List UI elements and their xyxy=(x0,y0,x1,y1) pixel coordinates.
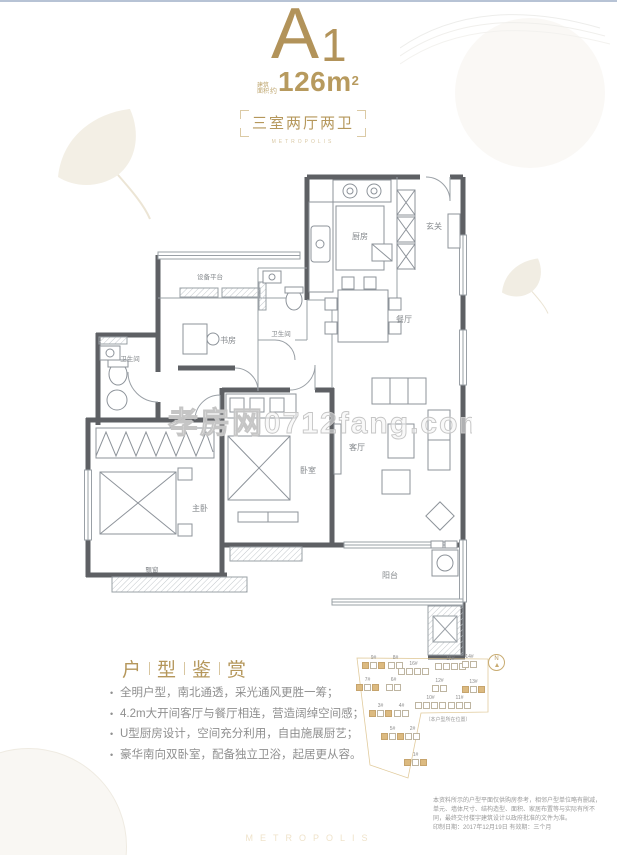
room-living: 客厅 xyxy=(349,442,365,452)
room-master-bedroom: 主卧 xyxy=(192,503,208,513)
siteplan-building-4: 4# xyxy=(394,703,409,717)
building-unit-cell xyxy=(435,663,442,670)
room-bath-left: 卫生间 xyxy=(120,354,140,363)
building-unit-cell xyxy=(448,702,455,709)
highlights-title-char: 赏 xyxy=(227,655,247,682)
building-unit-cell xyxy=(388,662,395,669)
siteplan-building-7: 7# xyxy=(356,677,379,691)
building-unit-cell xyxy=(381,733,388,740)
disclaimer-line: 本资料所示的户型平面仅供购房参考，相邻户型单位略有删减， xyxy=(433,797,611,806)
footer-brand-word: METROPOLIS xyxy=(225,833,395,843)
decor-circle-bottom-left xyxy=(0,748,127,855)
building-label: 5# xyxy=(390,726,396,732)
siteplan-building-9: 9# xyxy=(362,655,385,669)
building-label: 7# xyxy=(365,677,371,683)
building-label: 2# xyxy=(410,726,416,732)
building-label: 12# xyxy=(435,678,443,684)
siteplan-building-1: 1# xyxy=(404,752,427,766)
building-unit-cell xyxy=(372,684,379,691)
siteplan-building-14: 14# xyxy=(462,654,477,668)
siteplan-building-6: 6# xyxy=(386,677,401,691)
bracket-corner xyxy=(240,110,249,119)
building-unit-cell xyxy=(394,710,401,717)
building-unit-cell xyxy=(440,685,447,692)
area-approx: 约 xyxy=(270,86,277,96)
disclaimer-line: 同，最终交付楼宇建筑设计以政府批准的文件为准。 xyxy=(433,815,611,824)
ginkgo-leaf-small-icon xyxy=(498,256,554,316)
highlight-item: 豪华南向双卧室，配备独立卫浴，起居更从容。 xyxy=(110,745,380,766)
building-unit-cell xyxy=(398,668,405,675)
building-label: 13# xyxy=(469,679,477,685)
building-label: 16# xyxy=(409,661,417,667)
highlights-title: 户 型 鉴 赏 xyxy=(122,655,247,682)
building-unit-cell xyxy=(404,759,411,766)
building-unit-cell xyxy=(405,733,412,740)
bracket-corner xyxy=(357,110,366,119)
siteplan-note: （本户型所在位置） xyxy=(403,716,493,723)
area-caption-line2: 面积 xyxy=(257,89,269,95)
building-label: 10# xyxy=(426,695,434,701)
room-bath-hall: 卫生间 xyxy=(271,329,291,338)
building-unit-cell xyxy=(370,662,377,669)
building-unit-cell xyxy=(378,662,385,669)
brand-word: METROPOLIS xyxy=(240,139,366,145)
siteplan-building-13: 13# xyxy=(462,679,485,693)
building-unit-cell xyxy=(462,686,469,693)
building-unit-cell xyxy=(386,684,393,691)
plan-code-letter: A xyxy=(271,4,319,65)
building-unit-cell xyxy=(412,759,419,766)
building-unit-cell xyxy=(432,685,439,692)
highlights-title-char: 鉴 xyxy=(192,655,212,682)
building-label: 15# xyxy=(446,656,454,662)
room-bedroom: 卧室 xyxy=(300,465,316,475)
highlights-title-char: 户 xyxy=(122,655,142,682)
building-unit-cell xyxy=(443,663,450,670)
siteplan-building-16: 16# xyxy=(398,661,429,675)
room-foyer: 玄关 xyxy=(426,221,442,231)
watermark-text: 孝房网0712fang.com xyxy=(168,407,472,440)
building-unit-cell xyxy=(470,661,477,668)
disclaimer-line: 印制日期：2017年12月19日 有效期：三个月 xyxy=(433,824,611,833)
building-unit-cell xyxy=(415,702,422,709)
building-unit-cell xyxy=(414,668,421,675)
highlights-list: 全明户型，南北通透，采光通风更胜一筹； 4.2m大开间客厅与餐厅相连，营造阔绰空… xyxy=(110,683,380,765)
building-unit-cell xyxy=(464,702,471,709)
area-caption: 建筑 面积 xyxy=(257,83,269,95)
building-unit-cell xyxy=(385,710,392,717)
building-unit-cell xyxy=(462,661,469,668)
decor-circle-top-right xyxy=(455,18,605,168)
highlights-title-char: 型 xyxy=(157,655,177,682)
room-study: 书房 xyxy=(220,335,236,345)
building-unit-cell xyxy=(456,702,463,709)
elevator-shaft xyxy=(397,190,415,269)
title-separator xyxy=(219,662,220,675)
bracket-corner xyxy=(240,128,249,137)
building-label: 6# xyxy=(391,677,397,683)
building-unit-cell xyxy=(422,668,429,675)
building-unit-cell xyxy=(413,733,420,740)
building-unit-cell xyxy=(377,710,384,717)
building-unit-cell xyxy=(397,733,404,740)
area-superscript: 2 xyxy=(352,73,359,88)
layout-tag-box: 三室两厅两卫 xyxy=(240,110,366,137)
layout-tag-text: 三室两厅两卫 xyxy=(252,115,354,132)
siteplan-building-5: 5# xyxy=(381,726,404,740)
building-unit-cell xyxy=(364,684,371,691)
floorplan: 厨房 玄关 设备平台 书房 卫生间 卫生间 餐厅 客厅 主卧 卧室 阳台 飘窗 … xyxy=(70,160,472,662)
building-unit-cell xyxy=(423,702,430,709)
siteplan-building-11: 11# xyxy=(448,695,471,709)
building-unit-cell xyxy=(369,710,376,717)
area-value: 126m xyxy=(278,66,352,98)
disclaimer: 本资料所示的户型平面仅供购房参考，相邻户型单位略有删减， 单元、墙体尺寸、结构造… xyxy=(433,797,611,833)
flyer-page: A 1 建筑 面积 约 126m 2 三室两厅两卫 METROPOLIS xyxy=(0,0,617,855)
building-label: 3# xyxy=(378,703,384,709)
building-unit-cell xyxy=(439,702,446,709)
building-label: 9# xyxy=(371,655,377,661)
room-bay-window: 飘窗 xyxy=(146,565,159,574)
siteplan-building-10: 10# xyxy=(415,695,446,709)
building-unit-cell xyxy=(478,686,485,693)
highlight-item: U型厨房设计，空间充分利用，自由施展厨艺； xyxy=(110,724,380,745)
north-label: N xyxy=(489,656,504,663)
building-unit-cell xyxy=(356,684,363,691)
decor-arcs-top xyxy=(400,2,617,82)
building-unit-cell xyxy=(431,702,438,709)
building-unit-cell xyxy=(470,686,477,693)
building-unit-cell xyxy=(389,733,396,740)
siteplan: 9#8#16#15#14#7#6#12#13#10#11#3#4#5#2#1# … xyxy=(345,652,510,802)
building-unit-cell xyxy=(420,759,427,766)
building-unit-cell xyxy=(394,684,401,691)
building-unit-cell xyxy=(362,662,369,669)
highlight-item: 4.2m大开间客厅与餐厅相连，营造阔绰空间感； xyxy=(110,704,380,725)
siteplan-building-12: 12# xyxy=(432,678,447,692)
siteplan-building-3: 3# xyxy=(369,703,392,717)
highlight-item: 全明户型，南北通透，采光通风更胜一筹； xyxy=(110,683,380,704)
room-equipment-platform: 设备平台 xyxy=(197,272,223,281)
plan-code: A 1 xyxy=(271,4,347,65)
room-balcony: 阳台 xyxy=(382,570,398,580)
plan-code-number: 1 xyxy=(321,26,347,65)
siteplan-building-2: 2# xyxy=(405,726,420,740)
north-triangle xyxy=(495,663,499,667)
room-kitchen: 厨房 xyxy=(352,231,368,241)
building-unit-cell xyxy=(406,668,413,675)
building-label: 4# xyxy=(399,703,405,709)
disclaimer-line: 单元、墙体尺寸、结构造型、面积、家居布置等与实际有所不 xyxy=(433,806,611,815)
bracket-corner xyxy=(357,128,366,137)
building-label: 11# xyxy=(456,695,464,701)
title-separator xyxy=(184,662,185,675)
north-arrow-icon: N xyxy=(488,654,505,671)
building-unit-cell xyxy=(451,663,458,670)
area-line: 建筑 面积 约 126m 2 xyxy=(257,66,359,98)
room-dining: 餐厅 xyxy=(396,315,412,324)
title-separator xyxy=(149,662,150,675)
building-label: 14# xyxy=(465,654,473,660)
building-label: 1# xyxy=(413,752,419,758)
